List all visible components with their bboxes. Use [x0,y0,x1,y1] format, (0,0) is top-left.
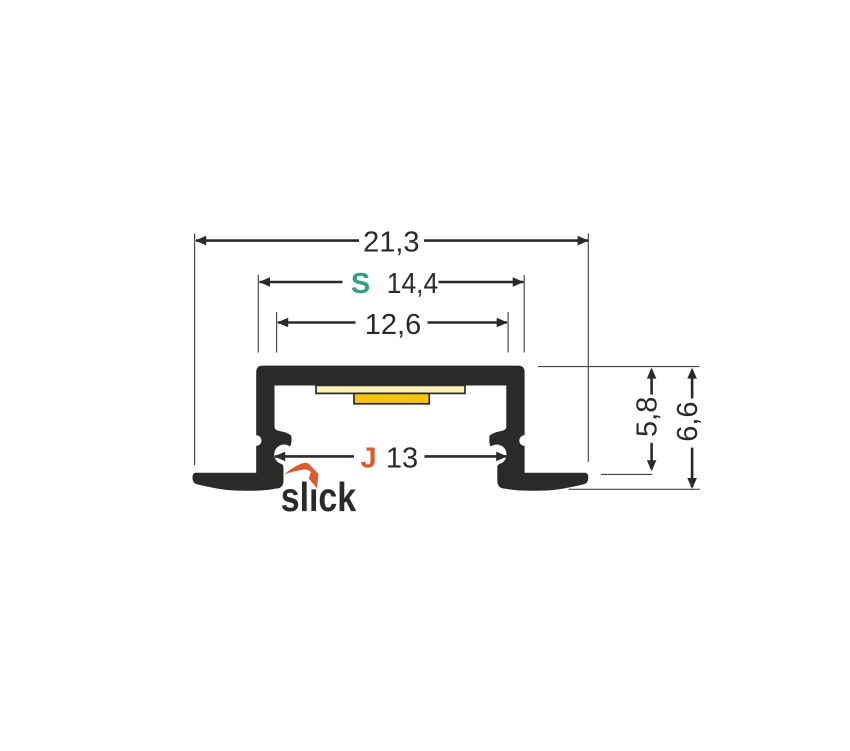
svg-text:6,6: 6,6 [672,401,704,441]
svg-text:5,8: 5,8 [631,397,663,437]
svg-text:14,4: 14,4 [387,268,439,300]
svg-text:21,3: 21,3 [363,227,419,259]
svg-text:slıck: slıck [281,474,357,520]
svg-text:J: J [361,442,377,474]
svg-text:S: S [351,268,370,300]
svg-text:12,6: 12,6 [365,309,421,341]
svg-text:13: 13 [386,442,418,474]
